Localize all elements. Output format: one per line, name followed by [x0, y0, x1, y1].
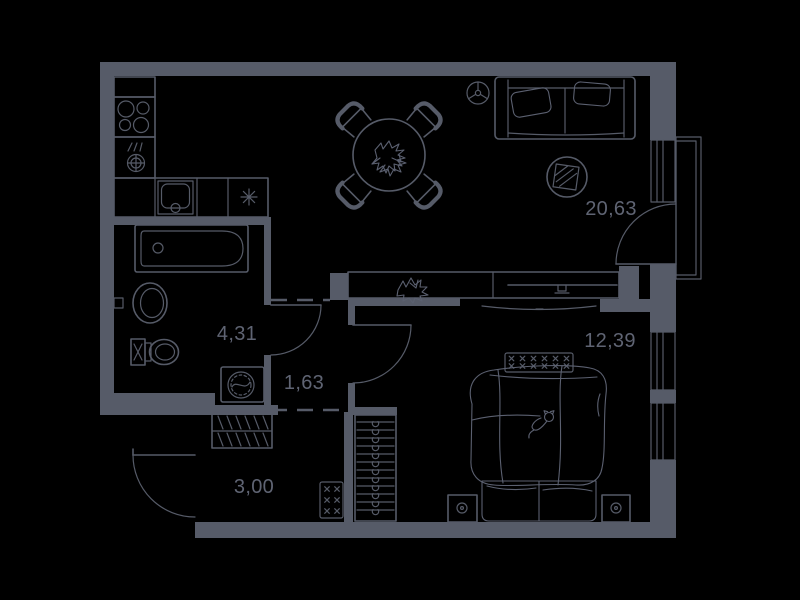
toilet — [131, 339, 179, 365]
wall-column — [619, 266, 639, 299]
wall-bathroom-top — [100, 217, 271, 225]
wall-right-between-windows — [650, 390, 676, 403]
kitchen — [114, 77, 268, 217]
wall-washer-niche — [215, 405, 278, 415]
nightstand-right — [602, 495, 630, 522]
washbasin — [114, 283, 167, 323]
wardrobe — [355, 415, 396, 521]
chair — [406, 100, 444, 138]
stove — [114, 97, 155, 137]
chair — [334, 100, 372, 138]
wall-top — [100, 62, 676, 76]
dining-set — [334, 100, 444, 211]
sofa — [495, 77, 635, 139]
tv-living — [508, 285, 617, 293]
wall-hall-bedroom — [344, 412, 353, 522]
bathtub — [135, 225, 248, 272]
chair — [406, 173, 444, 211]
cat — [529, 411, 554, 438]
bathroom — [114, 225, 264, 402]
bathroom-door — [271, 305, 321, 355]
living-room — [467, 77, 635, 197]
wall-bottom — [195, 522, 676, 538]
wall-bedroom-top-right — [600, 299, 676, 312]
label-inner-hall-area: 1,63 — [284, 372, 324, 394]
wall-left — [100, 62, 114, 415]
ceiling-light-icon — [467, 82, 489, 104]
radiator — [505, 353, 573, 372]
coat-hooks — [212, 412, 272, 448]
entry-door — [133, 449, 195, 517]
bed — [470, 366, 606, 521]
faucet-water-icon — [128, 143, 142, 151]
wall-bedroom-door-jamb-top — [348, 306, 355, 325]
counter-sink — [158, 181, 193, 214]
label-entry-hall-area: 3,00 — [234, 476, 274, 498]
chair — [334, 173, 372, 211]
floor-plan-canvas: 20,63 12,39 4,31 1,63 3,00 — [0, 0, 800, 600]
kitchen-cabinet — [114, 77, 155, 97]
bedroom-door — [353, 325, 411, 383]
halls — [212, 412, 343, 518]
duvet — [470, 366, 606, 486]
balcony — [676, 137, 701, 279]
wall-divider-stub — [330, 273, 348, 300]
wall-right-top — [650, 62, 676, 140]
walls — [100, 62, 676, 538]
wall-bedroom-top-left — [348, 298, 460, 306]
room-labels: 20,63 12,39 4,31 1,63 3,00 — [217, 198, 637, 498]
sofa-pillow — [510, 87, 552, 118]
fridge-asterisk-icon — [241, 189, 257, 205]
doors — [133, 204, 676, 517]
wall-right-mid — [650, 264, 676, 332]
bedroom — [355, 353, 630, 522]
table-plant — [372, 141, 406, 176]
dining-table — [353, 119, 425, 191]
sink-cabinet — [114, 137, 155, 178]
wall-bathroom-bottom — [100, 393, 215, 415]
sofa-pillow — [573, 81, 611, 106]
electrical-panel — [320, 482, 343, 518]
floor-symbol-hatched-square — [547, 157, 587, 197]
washing-machine — [221, 367, 264, 402]
label-living-area: 20,63 — [585, 198, 637, 220]
label-bedroom-area: 12,39 — [584, 330, 636, 352]
kitchen-counter — [114, 178, 268, 217]
bedroom-window-2 — [651, 403, 675, 460]
wall-wardrobe-top — [348, 407, 397, 415]
label-bathroom-area: 4,31 — [217, 323, 257, 345]
living-window — [651, 140, 675, 202]
wall-bathroom-right-upper — [264, 217, 271, 305]
floor-plan-screenshot: 20,63 12,39 4,31 1,63 3,00 — [0, 0, 800, 600]
bedroom-window-1 — [651, 332, 675, 390]
nightstand-left — [448, 495, 477, 522]
